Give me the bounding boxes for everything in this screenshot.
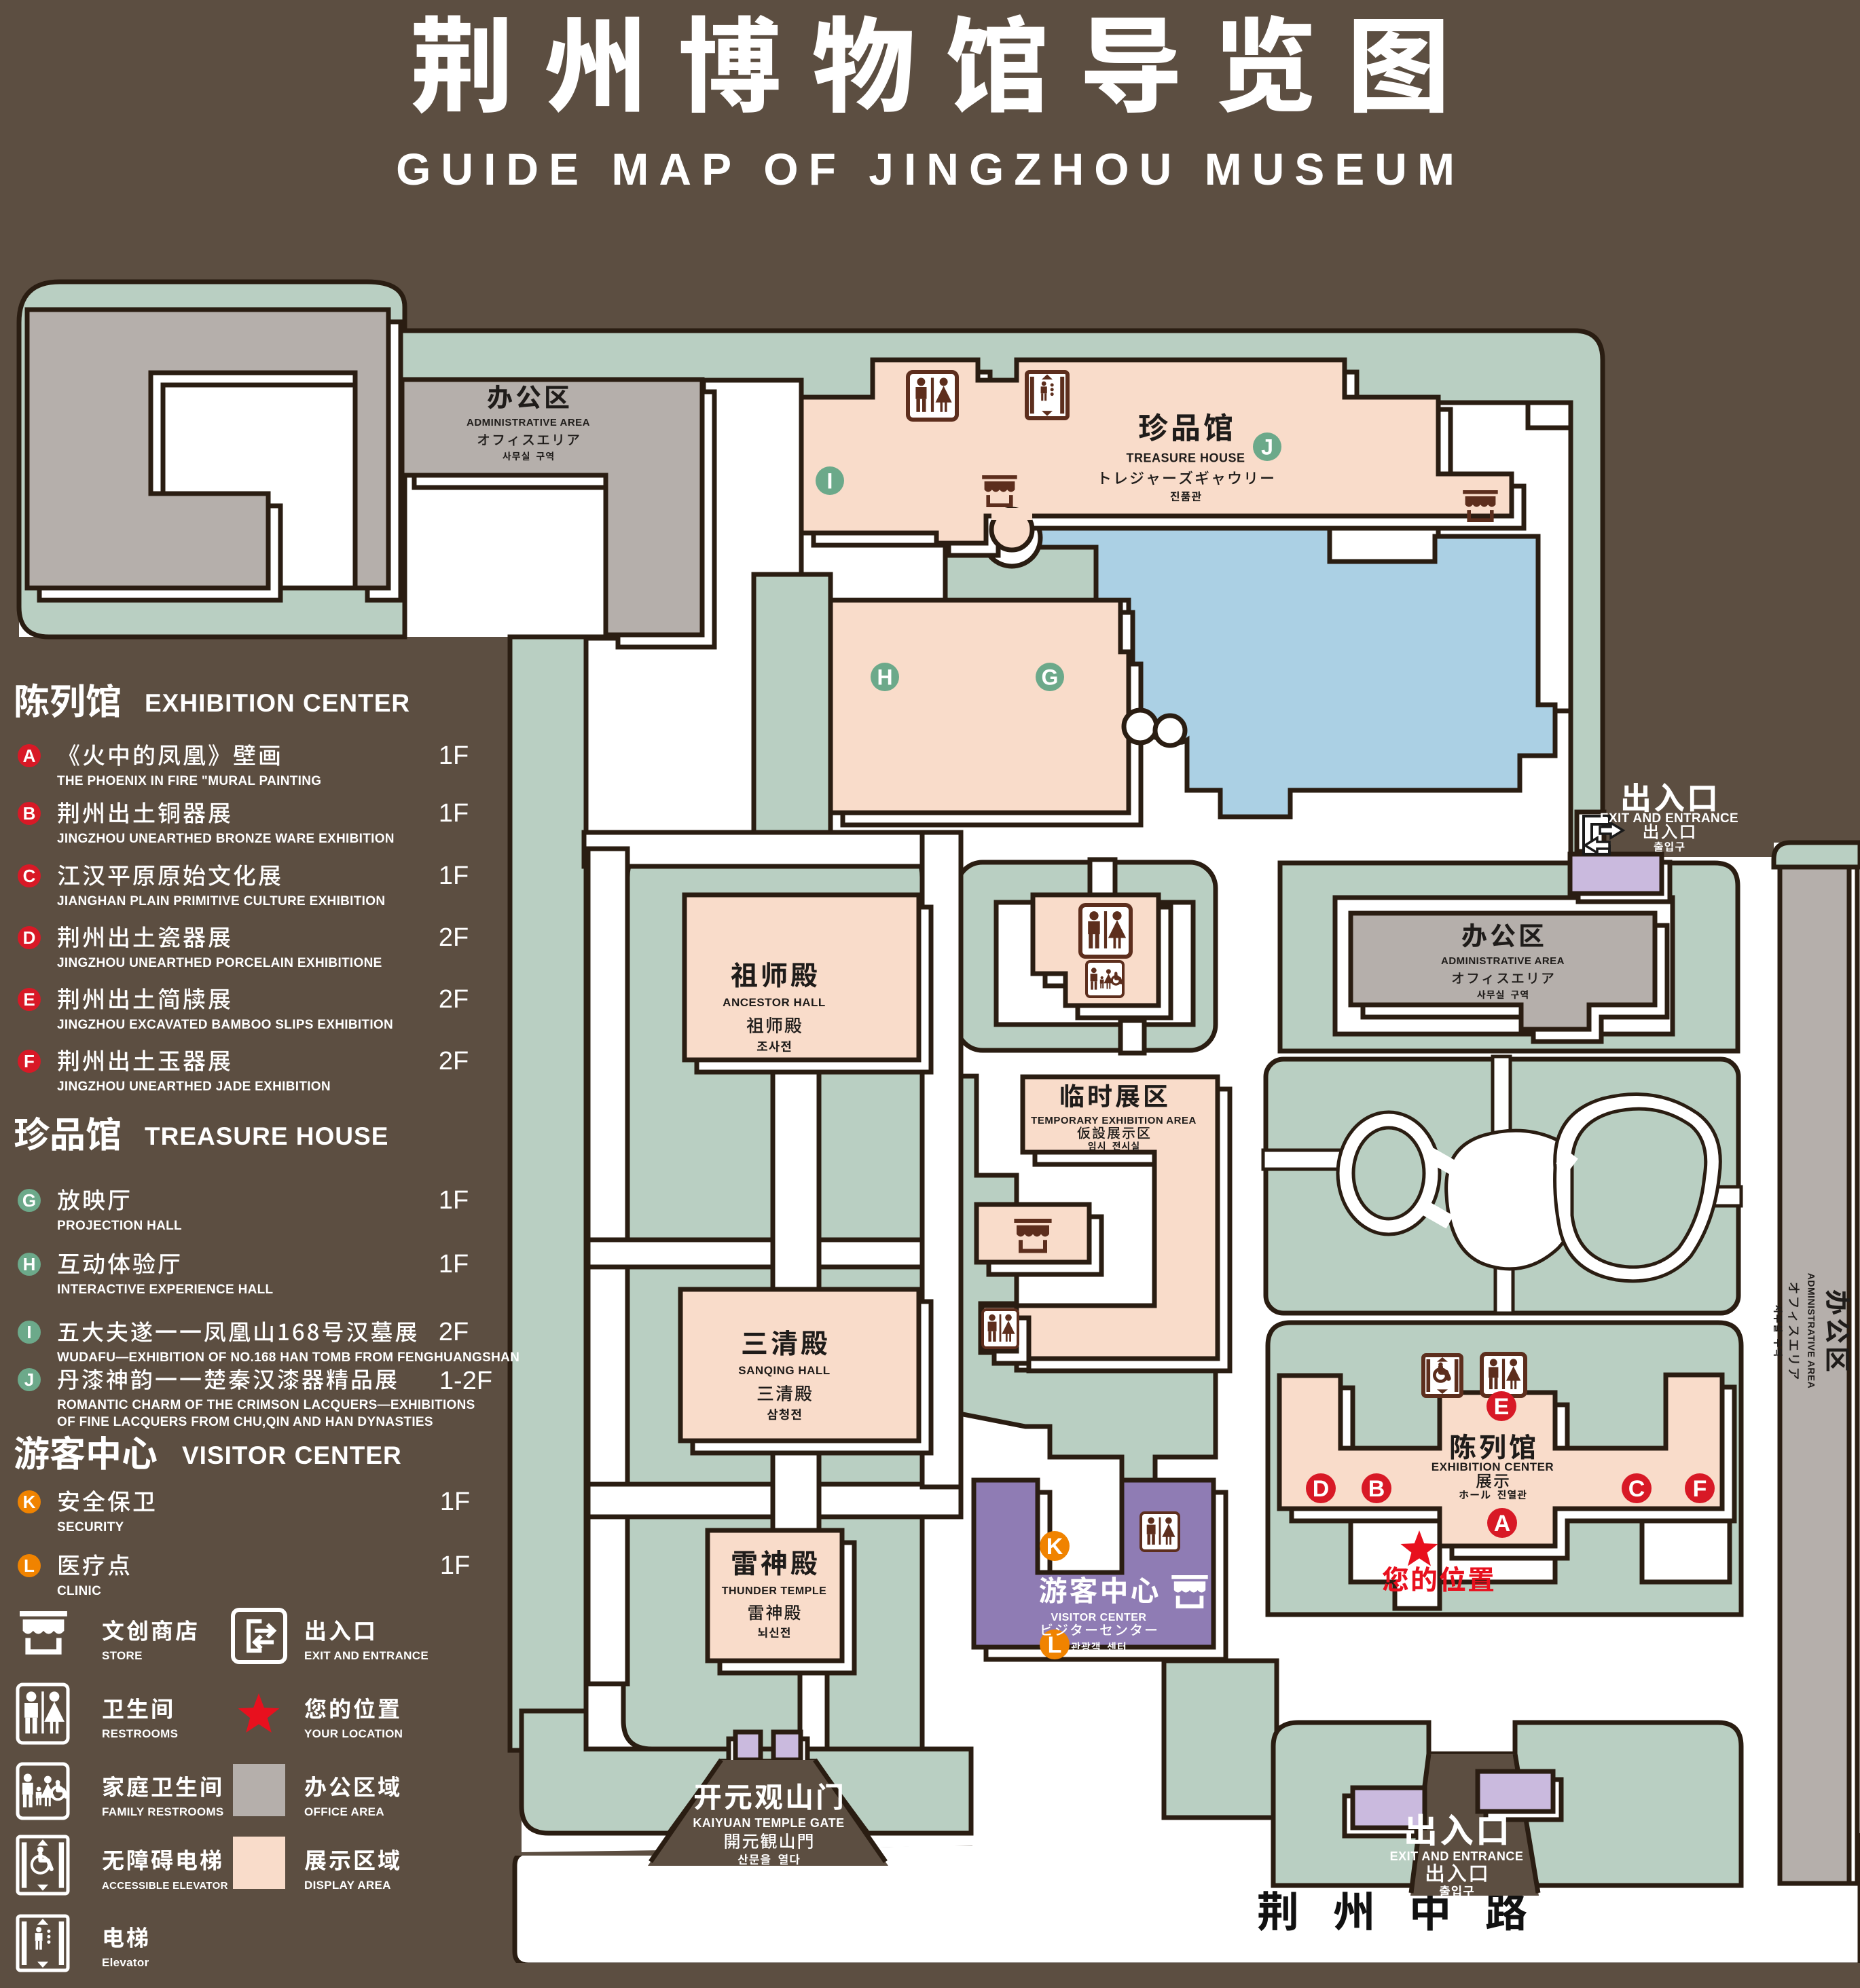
svg-text:B: B xyxy=(1368,1476,1385,1502)
svg-text:I: I xyxy=(26,1322,31,1342)
svg-text:D: D xyxy=(1313,1476,1330,1502)
svg-text:INTERACTIVE EXPERIENCE HALL: INTERACTIVE EXPERIENCE HALL xyxy=(57,1283,274,1297)
svg-text:B: B xyxy=(23,803,36,824)
svg-text:L: L xyxy=(24,1556,35,1576)
svg-text:2F: 2F xyxy=(439,1047,469,1075)
svg-text:K: K xyxy=(23,1492,36,1512)
svg-text:YOUR LOCATION: YOUR LOCATION xyxy=(304,1727,403,1740)
svg-text:ANCESTOR HALL: ANCESTOR HALL xyxy=(723,996,826,1009)
svg-text:1F: 1F xyxy=(439,862,469,890)
svg-text:1F: 1F xyxy=(440,1488,470,1516)
svg-text:H: H xyxy=(877,665,892,690)
svg-text:D: D xyxy=(23,927,36,948)
svg-text:VISITOR CENTER: VISITOR CENTER xyxy=(1051,1612,1147,1623)
svg-text:1-2F: 1-2F xyxy=(439,1367,492,1395)
svg-text:OFFICE AREA: OFFICE AREA xyxy=(304,1805,384,1818)
svg-text:SANQING HALL: SANQING HALL xyxy=(738,1364,830,1377)
svg-text:CLINIC: CLINIC xyxy=(57,1584,101,1598)
svg-text:VISITOR CENTER: VISITOR CENTER xyxy=(182,1441,402,1469)
svg-text:EXIT AND ENTRANCE: EXIT AND ENTRANCE xyxy=(1600,811,1738,826)
svg-text:J: J xyxy=(1261,435,1273,460)
svg-text:E: E xyxy=(23,989,35,1010)
svg-text:F: F xyxy=(24,1051,35,1071)
svg-text:ACCESSIBLE ELEVATOR: ACCESSIBLE ELEVATOR xyxy=(102,1880,228,1892)
svg-text:G: G xyxy=(22,1190,36,1211)
svg-text:PROJECTION HALL: PROJECTION HALL xyxy=(57,1219,182,1233)
svg-text:JINGZHOU UNEARTHED BRONZE WARE: JINGZHOU UNEARTHED BRONZE WARE EXHIBITIO… xyxy=(57,832,395,846)
svg-text:JIANGHAN PLAIN PRIMITIVE CULTU: JIANGHAN PLAIN PRIMITIVE CULTURE EXHIBIT… xyxy=(57,894,385,908)
svg-text:1F: 1F xyxy=(439,799,469,828)
svg-text:2F: 2F xyxy=(439,1318,469,1346)
svg-text:EXHIBITION CENTER: EXHIBITION CENTER xyxy=(1432,1460,1554,1473)
svg-text:G: G xyxy=(1042,665,1059,690)
svg-text:2F: 2F xyxy=(439,985,469,1014)
svg-text:ADMINISTRATIVE AREA: ADMINISTRATIVE AREA xyxy=(1806,1273,1817,1389)
svg-text:ROMANTIC CHARM OF THE CRIMSON: ROMANTIC CHARM OF THE CRIMSON LACQUERS—E… xyxy=(57,1398,475,1412)
svg-text:C: C xyxy=(23,866,36,886)
svg-text:J: J xyxy=(24,1369,34,1390)
svg-text:WUDAFU—EXHIBITION OF NO.168 HA: WUDAFU—EXHIBITION OF NO.168 HAN TOMB FRO… xyxy=(57,1350,519,1365)
svg-text:1F: 1F xyxy=(439,1250,469,1278)
svg-text:1F: 1F xyxy=(439,741,469,770)
svg-text:F: F xyxy=(1693,1476,1707,1502)
svg-text:JINGZHOU UNEARTHED JADE EXHIBI: JINGZHOU UNEARTHED JADE EXHIBITION xyxy=(57,1080,331,1094)
svg-text:EXIT AND ENTRANCE: EXIT AND ENTRANCE xyxy=(1390,1849,1524,1863)
svg-text:GUIDE MAP OF JINGZHOU MUSEUM: GUIDE MAP OF JINGZHOU MUSEUM xyxy=(396,144,1465,194)
svg-text:E: E xyxy=(1494,1394,1510,1420)
svg-text:TREASURE HOUSE: TREASURE HOUSE xyxy=(145,1122,388,1150)
svg-text:1F: 1F xyxy=(440,1551,470,1580)
svg-text:STORE: STORE xyxy=(102,1649,143,1662)
svg-text:I: I xyxy=(827,469,833,494)
svg-text:DISPLAY AREA: DISPLAY AREA xyxy=(304,1879,391,1892)
svg-text:RESTROOMS: RESTROOMS xyxy=(102,1727,178,1740)
svg-text:THUNDER TEMPLE: THUNDER TEMPLE xyxy=(722,1585,827,1597)
svg-text:C: C xyxy=(1628,1476,1645,1502)
svg-text:THE PHOENIX IN FIRE "MURAL PAI: THE PHOENIX IN FIRE "MURAL PAINTING xyxy=(57,774,321,788)
svg-text:KAIYUAN TEMPLE GATE: KAIYUAN TEMPLE GATE xyxy=(693,1816,844,1830)
svg-text:TREASURE HOUSE: TREASURE HOUSE xyxy=(1126,451,1245,464)
svg-text:FAMILY RESTROOMS: FAMILY RESTROOMS xyxy=(102,1805,224,1818)
svg-text:1F: 1F xyxy=(439,1186,469,1215)
svg-text:A: A xyxy=(23,745,36,766)
svg-text:JINGZHOU UNEARTHED PORCELAIN E: JINGZHOU UNEARTHED PORCELAIN EXHIBITIONE xyxy=(57,956,382,970)
svg-text:SECURITY: SECURITY xyxy=(57,1520,124,1534)
svg-text:2F: 2F xyxy=(439,923,469,952)
svg-text:ADMINISTRATIVE AREA: ADMINISTRATIVE AREA xyxy=(1441,955,1565,967)
svg-text:Elevator: Elevator xyxy=(102,1956,149,1969)
svg-text:EXIT AND ENTRANCE: EXIT AND ENTRANCE xyxy=(304,1649,428,1662)
svg-text:L: L xyxy=(1048,1632,1062,1658)
svg-text:JINGZHOU EXCAVATED BAMBOO SLIP: JINGZHOU EXCAVATED BAMBOO SLIPS EXHIBITI… xyxy=(57,1018,393,1032)
svg-text:OF FINE LACQUERS FROM CHU,QIN: OF FINE LACQUERS FROM CHU,QIN AND HAN DY… xyxy=(57,1415,433,1429)
svg-text:ADMINISTRATIVE AREA: ADMINISTRATIVE AREA xyxy=(467,417,590,428)
svg-text:A: A xyxy=(1494,1511,1511,1536)
svg-text:TEMPORARY EXHIBITION AREA: TEMPORARY EXHIBITION AREA xyxy=(1031,1115,1197,1126)
svg-text:EXHIBITION CENTER: EXHIBITION CENTER xyxy=(145,689,410,717)
svg-text:H: H xyxy=(23,1254,36,1274)
svg-text:K: K xyxy=(1046,1534,1063,1560)
